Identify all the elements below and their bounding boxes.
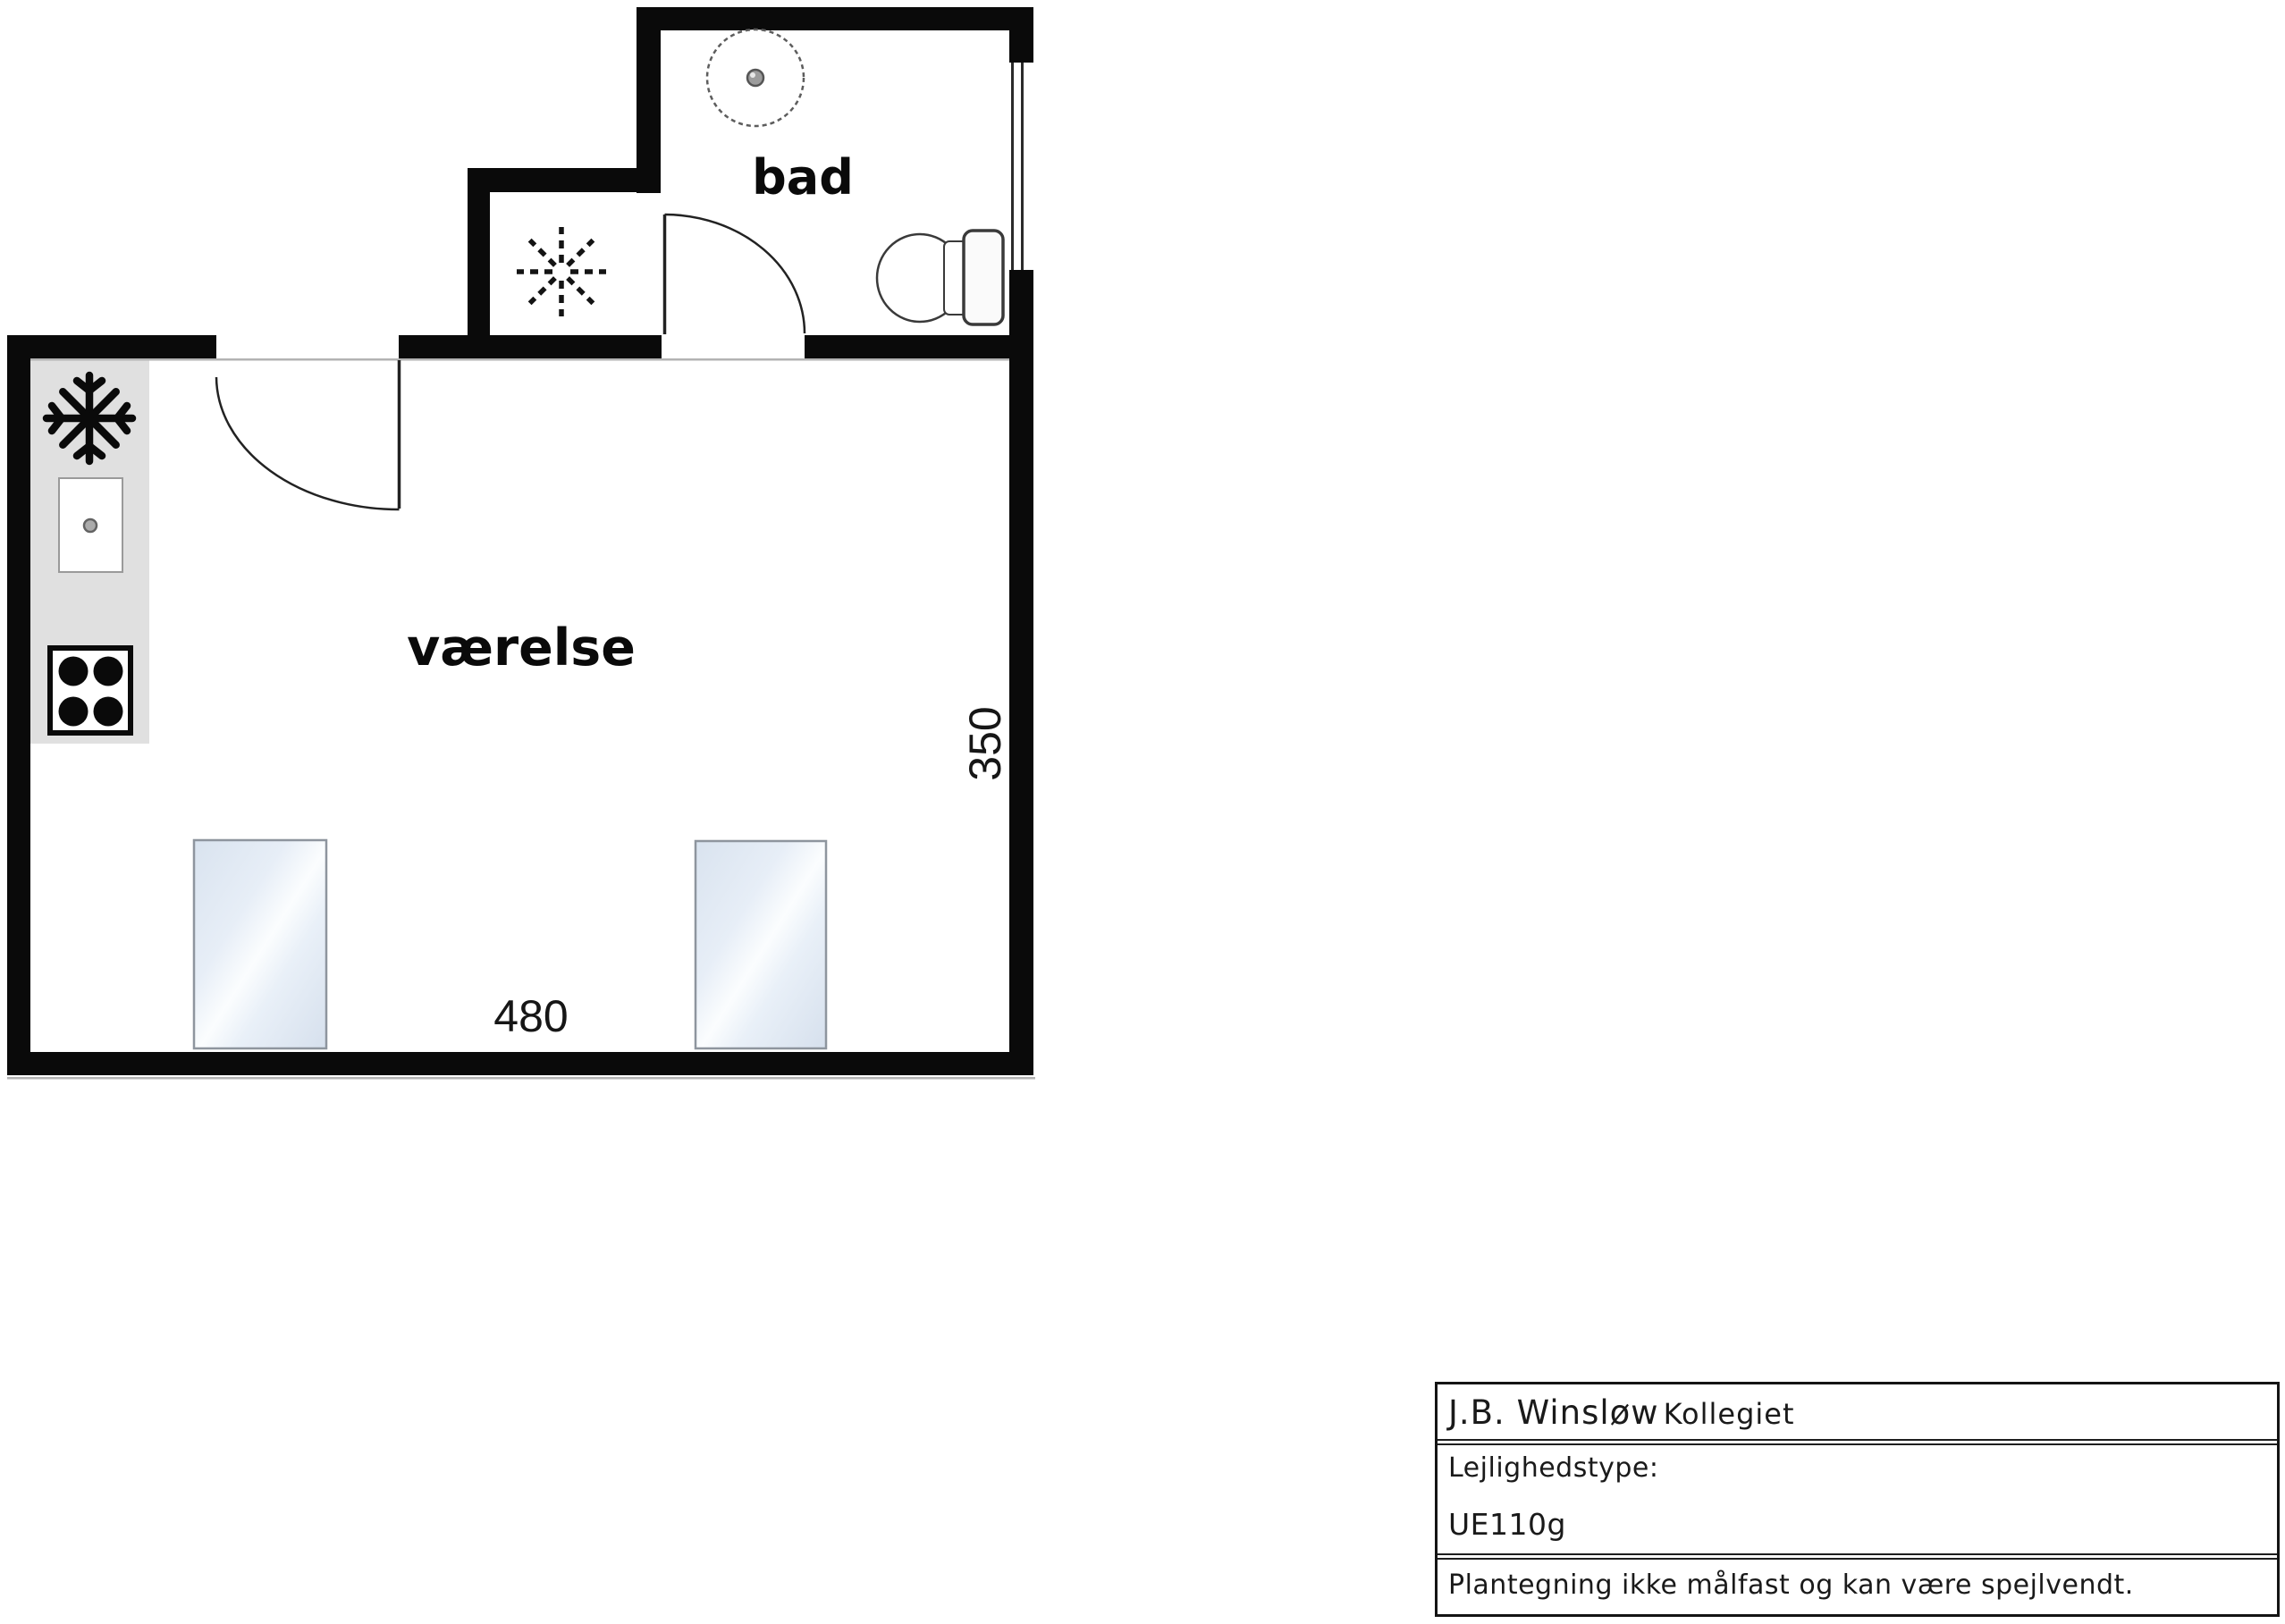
- title-block-name-row: J.B. Winsløw Kollegiet: [1438, 1384, 2277, 1439]
- title-block-divider: [1438, 1553, 2277, 1560]
- wall-segment: [468, 168, 661, 192]
- wall-segment: [399, 335, 662, 358]
- bathroom-label: bad: [752, 149, 854, 206]
- wall-segment: [7, 335, 30, 1075]
- entry-door: [216, 360, 400, 509]
- wall-segment: [805, 335, 1033, 358]
- wall-segment: [468, 168, 490, 358]
- stove-burner: [94, 697, 123, 727]
- building-name-suffix: Kollegiet: [1664, 1397, 1795, 1431]
- wall-segment: [1009, 270, 1033, 1075]
- sink-drain-icon: [84, 519, 97, 532]
- apartment-type-value: UE110g: [1448, 1507, 2277, 1542]
- sink-symbol: [59, 478, 122, 572]
- disclaimer-text: Plantegning ikke målfast og kan være spe…: [1448, 1569, 2277, 1601]
- wall-segment: [637, 7, 661, 193]
- walls: [7, 7, 1033, 1075]
- window-glass-right: [696, 841, 826, 1048]
- title-block-disclaimer-row: Plantegning ikke målfast og kan være spe…: [1438, 1560, 2277, 1611]
- building-name: J.B. Winsløw: [1448, 1393, 1659, 1432]
- window-glass-left: [194, 840, 326, 1048]
- toilet-symbol: [877, 231, 1003, 324]
- bathroom-door: [665, 215, 805, 334]
- entry-door-swing: [216, 377, 400, 509]
- floor-plan-drawing: bad værelse 480 350: [0, 0, 2285, 1624]
- title-block-divider: [1438, 1439, 2277, 1445]
- title-block-type-row: Lejlighedstype: UE110g: [1438, 1445, 2277, 1553]
- stove-burner: [59, 697, 89, 727]
- wall-window: [1009, 63, 1033, 270]
- depth-dimension-label: 350: [960, 706, 1010, 780]
- apartment-type-label: Lejlighedstype:: [1448, 1452, 2277, 1484]
- fan-icon: [517, 227, 606, 316]
- wall-segment: [637, 7, 1033, 30]
- wall-segment: [7, 1052, 1033, 1075]
- width-dimension-label: 480: [493, 991, 568, 1041]
- toilet-cistern: [964, 231, 1003, 324]
- stove-burner: [59, 657, 89, 686]
- shower-drain-symbol: [707, 29, 804, 126]
- bathroom-door-swing: [665, 215, 805, 333]
- wall-segment: [7, 335, 216, 358]
- wall-hairlines: [7, 358, 1035, 1080]
- floor-plan-page: bad værelse 480 350 J.B. Winsløw Kollegi…: [0, 0, 2285, 1624]
- title-block: J.B. Winsløw Kollegiet Lejlighedstype: U…: [1435, 1382, 2280, 1617]
- main-room-label: værelse: [407, 618, 636, 677]
- stove-burner: [94, 657, 123, 686]
- stove-symbol: [50, 648, 131, 733]
